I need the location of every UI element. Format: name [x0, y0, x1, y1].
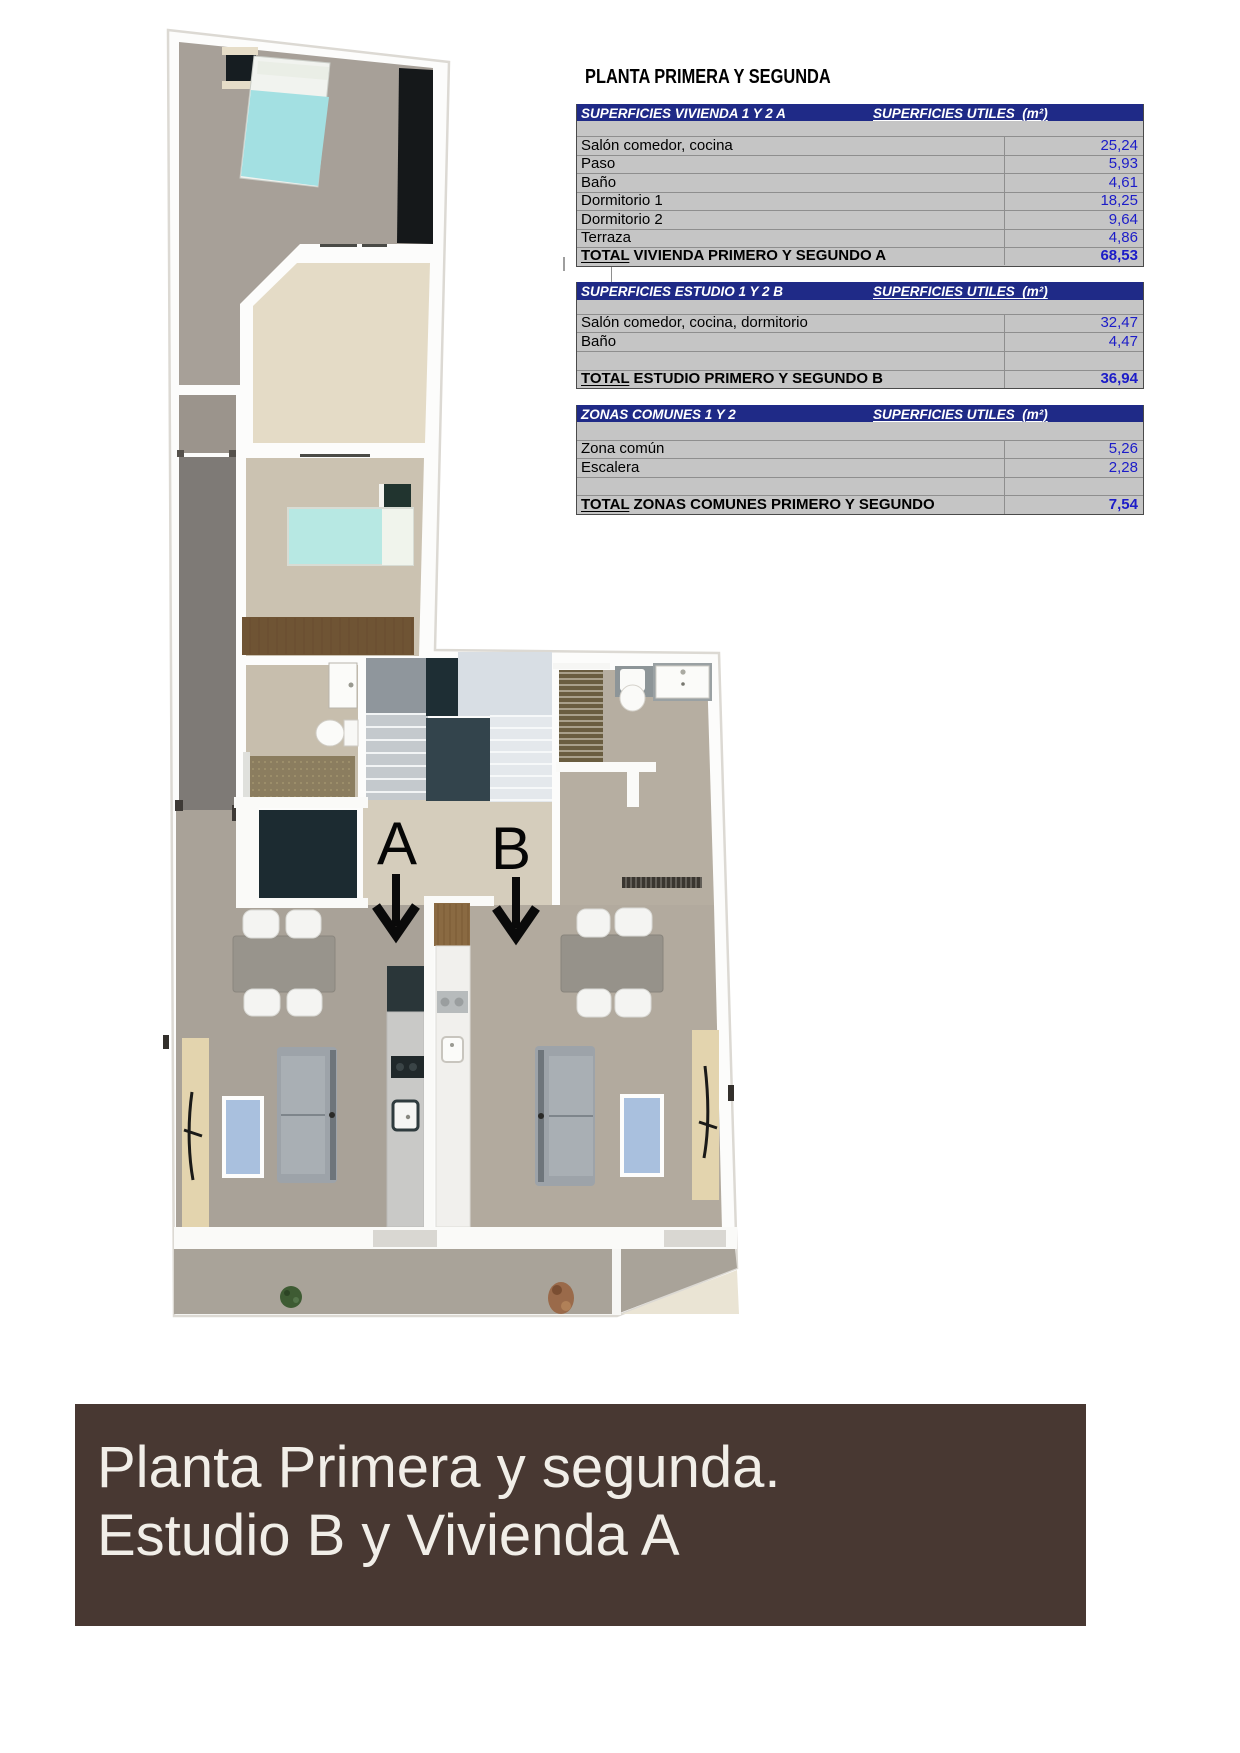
svg-text:A: A: [377, 810, 417, 877]
svg-text:B: B: [491, 815, 531, 882]
